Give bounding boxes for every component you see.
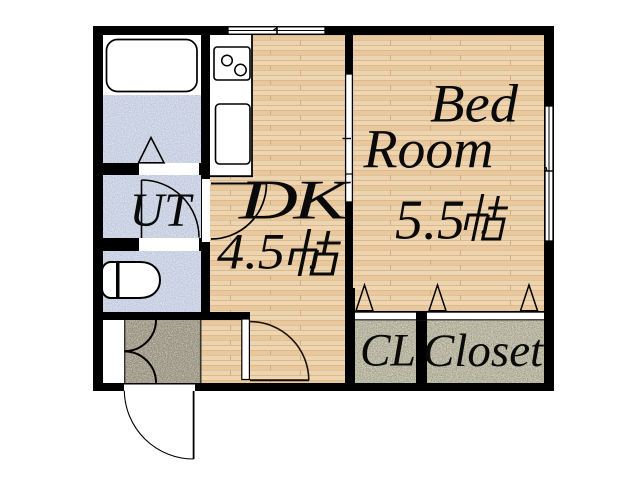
svg-text:K: K [292,170,351,232]
svg-text:Room: Room [362,119,493,180]
svg-text:D: D [238,170,298,232]
svg-text:5.5: 5.5 [395,189,465,251]
svg-text:CL: CL [360,325,416,377]
svg-text:UT: UT [130,184,195,237]
svg-text:Closet: Closet [423,325,544,377]
svg-text:4.5: 4.5 [217,225,285,281]
